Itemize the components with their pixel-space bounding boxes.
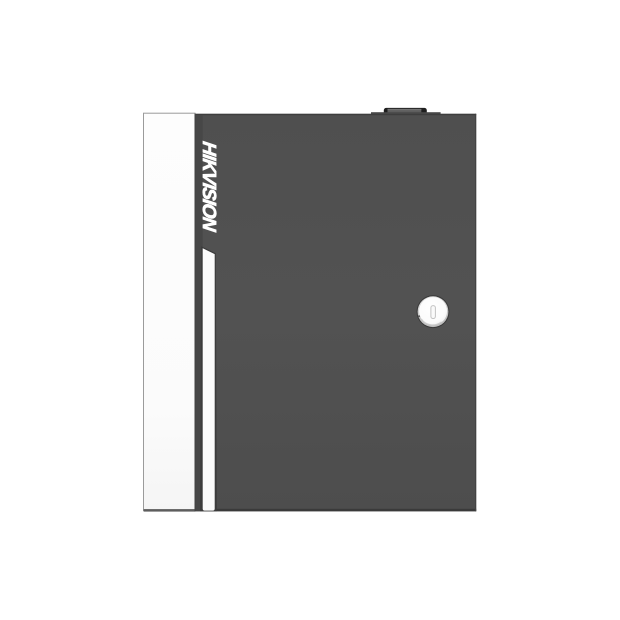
svg-text:HIKVISION: HIKVISION <box>198 140 219 234</box>
